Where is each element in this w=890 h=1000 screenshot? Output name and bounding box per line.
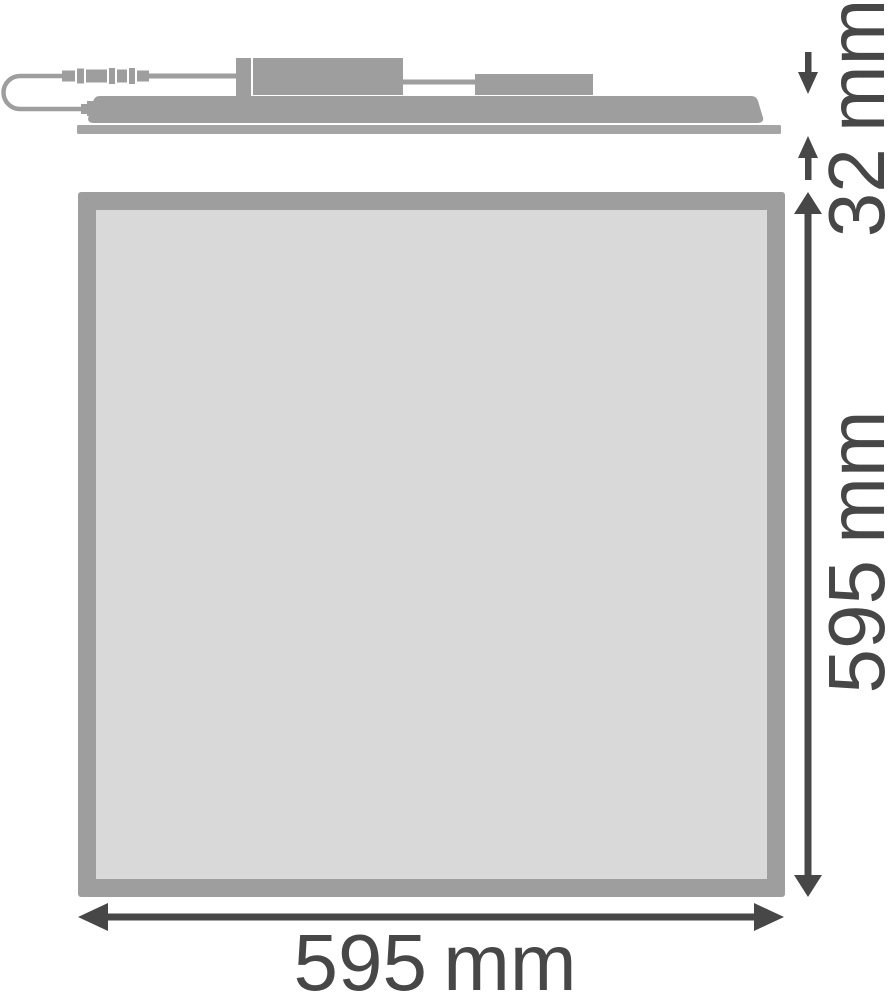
driver-box	[253, 58, 403, 95]
width-dimension-label: 595 mm	[294, 923, 577, 1000]
panel-front-view	[78, 192, 785, 897]
panel-back-plate	[77, 125, 781, 134]
panel-side-view	[4, 58, 782, 134]
junction-box	[475, 74, 593, 95]
panel-profile	[88, 96, 763, 123]
height-dimension-label: 32 mm	[817, 0, 890, 237]
led-panel-dimension-drawing: 32 mm 595 mm 595 mm	[0, 0, 890, 1000]
panel-diffuser	[96, 210, 767, 879]
junction-wire	[403, 80, 475, 85]
driver-input-wire	[149, 74, 236, 79]
driver-end-tab	[236, 58, 251, 97]
side-dimension-label: 595 mm	[817, 411, 890, 694]
cable-connector-icon	[62, 68, 149, 84]
